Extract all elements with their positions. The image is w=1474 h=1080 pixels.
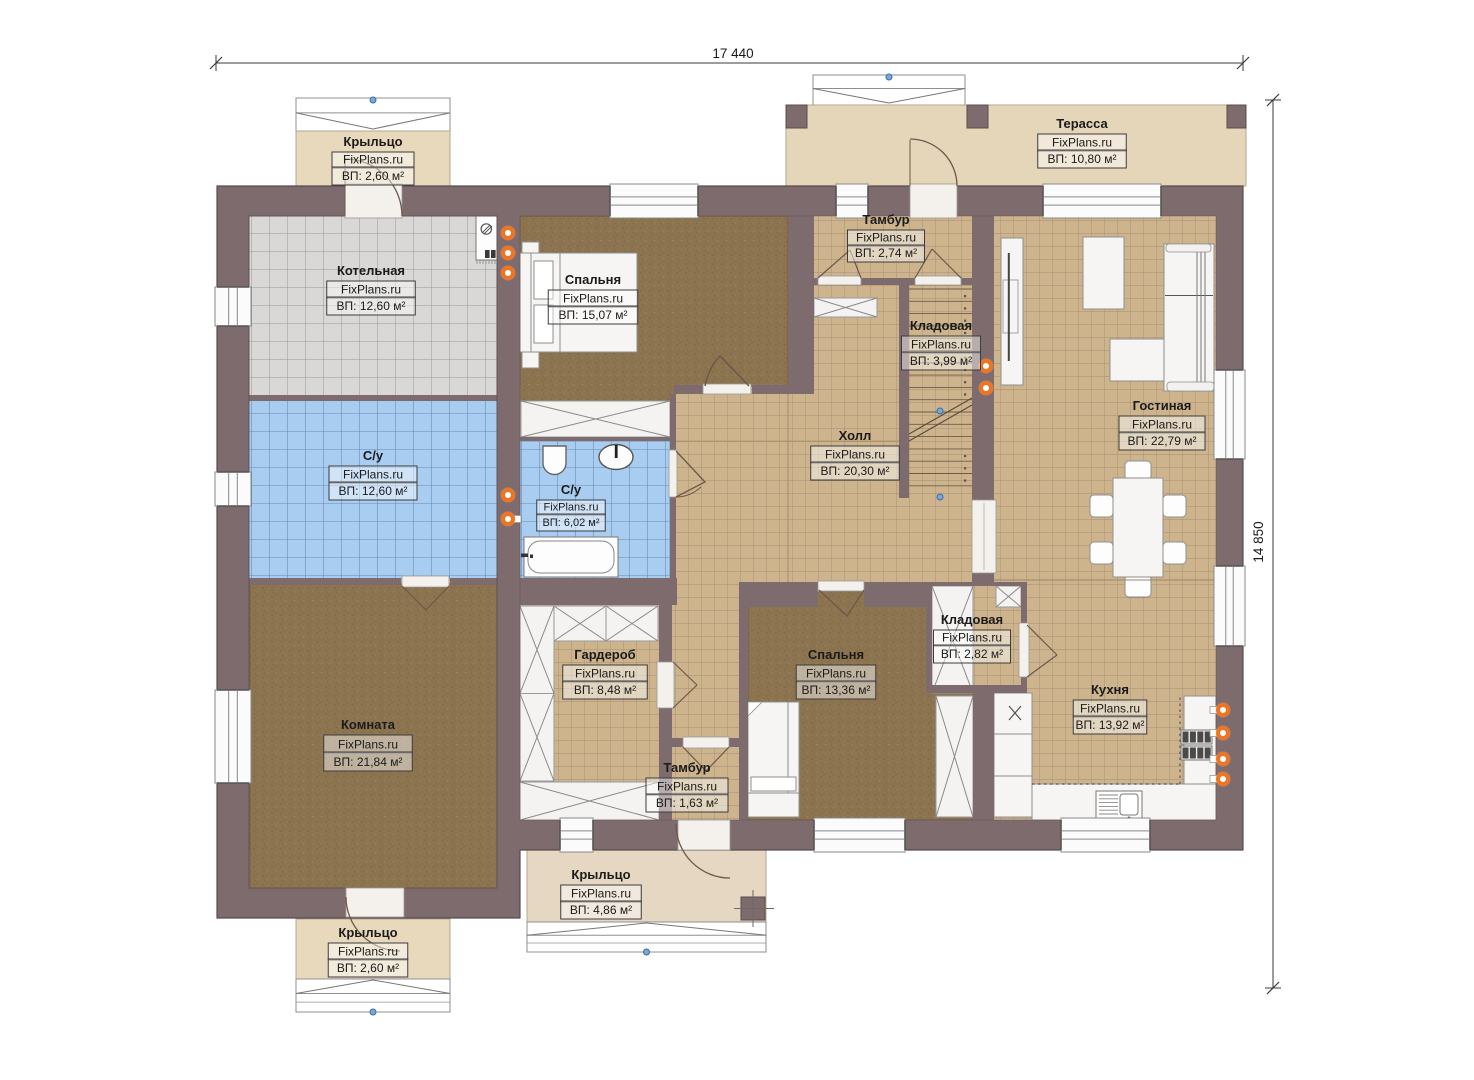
svg-text:Крыльцо: Крыльцо bbox=[338, 925, 397, 940]
svg-text:FixPlans.ru: FixPlans.ru bbox=[1052, 136, 1112, 150]
svg-text:ВП: 6,02 м²: ВП: 6,02 м² bbox=[542, 517, 599, 529]
svg-text:FixPlans.ru: FixPlans.ru bbox=[543, 502, 598, 514]
svg-text:FixPlans.ru: FixPlans.ru bbox=[911, 338, 971, 352]
svg-text:FixPlans.ru: FixPlans.ru bbox=[571, 887, 631, 901]
svg-text:ВП: 2,60 м²: ВП: 2,60 м² bbox=[342, 169, 404, 183]
svg-text:Терасса: Терасса bbox=[1056, 116, 1108, 131]
svg-text:Гостиная: Гостиная bbox=[1133, 398, 1192, 413]
svg-text:Спальня: Спальня bbox=[808, 647, 864, 662]
svg-text:Крыльцо: Крыльцо bbox=[343, 134, 402, 149]
svg-text:FixPlans.ru: FixPlans.ru bbox=[338, 945, 398, 959]
svg-text:FixPlans.ru: FixPlans.ru bbox=[1080, 702, 1140, 716]
svg-text:Тамбур: Тамбур bbox=[862, 212, 909, 227]
svg-text:ВП: 3,99 м²: ВП: 3,99 м² bbox=[910, 354, 972, 368]
svg-text:ВП: 13,36 м²: ВП: 13,36 м² bbox=[802, 683, 871, 697]
svg-text:ВП: 2,74 м²: ВП: 2,74 м² bbox=[855, 246, 917, 260]
svg-text:ВП: 22,79 м²: ВП: 22,79 м² bbox=[1128, 434, 1197, 448]
svg-text:ВП: 10,80 м²: ВП: 10,80 м² bbox=[1048, 152, 1117, 166]
svg-text:ВП: 12,60 м²: ВП: 12,60 м² bbox=[339, 484, 408, 498]
svg-text:ВП: 12,60 м²: ВП: 12,60 м² bbox=[337, 299, 406, 313]
svg-text:ВП: 15,07 м²: ВП: 15,07 м² bbox=[559, 308, 628, 322]
svg-text:ВП: 4,86 м²: ВП: 4,86 м² bbox=[570, 903, 632, 917]
svg-text:Котельная: Котельная bbox=[337, 263, 405, 278]
svg-text:ВП: 8,48 м²: ВП: 8,48 м² bbox=[574, 683, 636, 697]
svg-text:ВП: 13,92 м²: ВП: 13,92 м² bbox=[1076, 718, 1145, 732]
svg-text:Тамбур: Тамбур bbox=[663, 760, 710, 775]
svg-text:Крыльцо: Крыльцо bbox=[571, 867, 630, 882]
svg-text:FixPlans.ru: FixPlans.ru bbox=[343, 153, 403, 167]
svg-text:FixPlans.ru: FixPlans.ru bbox=[341, 283, 401, 297]
svg-text:Кухня: Кухня bbox=[1091, 682, 1129, 697]
svg-text:Кладовая: Кладовая bbox=[941, 612, 1003, 627]
svg-text:FixPlans.ru: FixPlans.ru bbox=[343, 468, 403, 482]
svg-text:FixPlans.ru: FixPlans.ru bbox=[942, 631, 1002, 645]
svg-text:14 850: 14 850 bbox=[1251, 521, 1266, 562]
svg-text:FixPlans.ru: FixPlans.ru bbox=[657, 780, 717, 794]
svg-text:ВП: 1,63 м²: ВП: 1,63 м² bbox=[656, 796, 718, 810]
svg-text:FixPlans.ru: FixPlans.ru bbox=[806, 667, 866, 681]
svg-text:Холл: Холл bbox=[839, 428, 872, 443]
svg-text:С/у: С/у bbox=[363, 448, 384, 463]
svg-text:С/у: С/у bbox=[561, 482, 582, 497]
svg-text:17 440: 17 440 bbox=[712, 46, 753, 61]
svg-text:FixPlans.ru: FixPlans.ru bbox=[338, 738, 398, 752]
svg-text:Кладовая: Кладовая bbox=[910, 318, 972, 333]
svg-text:FixPlans.ru: FixPlans.ru bbox=[563, 292, 623, 306]
svg-text:Комната: Комната bbox=[341, 717, 396, 732]
svg-text:ВП: 21,84 м²: ВП: 21,84 м² bbox=[334, 755, 403, 769]
svg-text:FixPlans.ru: FixPlans.ru bbox=[856, 231, 916, 245]
svg-text:ВП: 20,30 м²: ВП: 20,30 м² bbox=[821, 464, 890, 478]
svg-text:FixPlans.ru: FixPlans.ru bbox=[1132, 418, 1192, 432]
svg-text:Гардероб: Гардероб bbox=[574, 647, 635, 662]
svg-text:FixPlans.ru: FixPlans.ru bbox=[825, 448, 885, 462]
svg-text:ВП: 2,60 м²: ВП: 2,60 м² bbox=[337, 961, 399, 975]
svg-text:Спальня: Спальня bbox=[565, 272, 621, 287]
svg-text:FixPlans.ru: FixPlans.ru bbox=[575, 667, 635, 681]
svg-text:ВП: 2,82 м²: ВП: 2,82 м² bbox=[941, 647, 1003, 661]
